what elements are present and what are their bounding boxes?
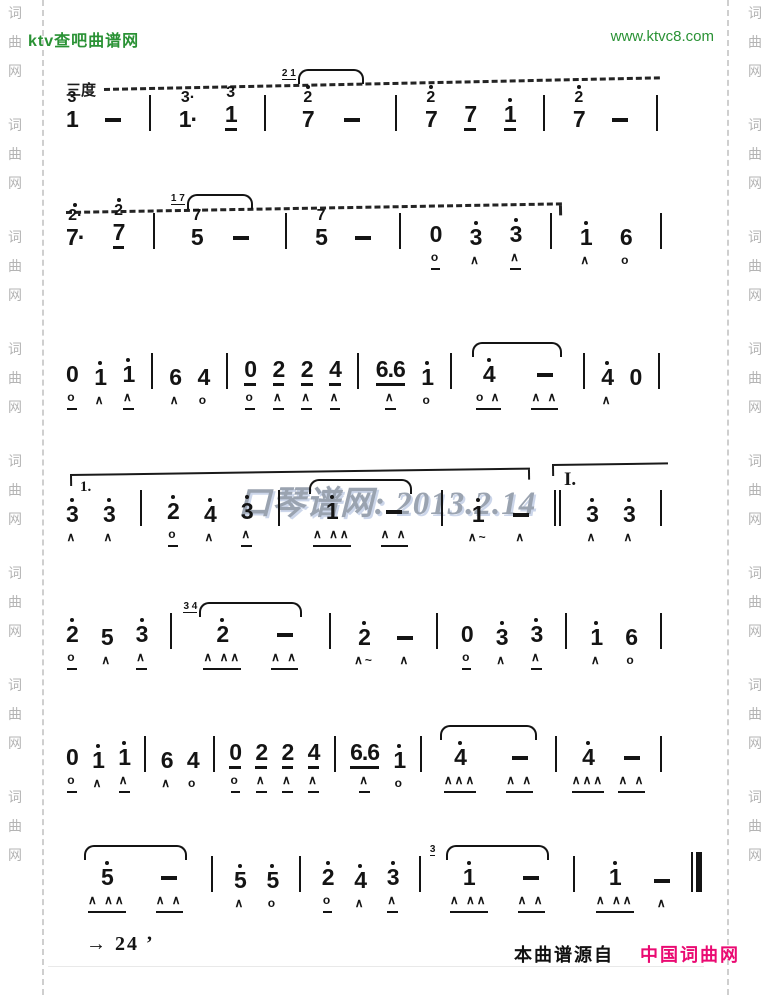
articulation-marks: ∧∧∧ [444,774,476,793]
note-number: 4 [354,869,366,892]
note-number: 2 [358,626,370,649]
barline [395,95,397,131]
articulation-marks: ∧ ∧ [618,774,645,793]
site-name: ktv查吧曲谱网 [28,27,139,51]
note-number: 0 [66,746,78,769]
chord-top-number: 3 [226,85,235,101]
note-token: 3∧ [510,216,522,270]
articulation-marks: ∧ ∧ [381,528,408,547]
barline [285,213,287,249]
dash [523,876,539,880]
articulation-marks: ∧ [301,391,312,410]
page-number: → 24 ʼ [86,933,155,956]
articulation-marks: ∧ [103,531,114,547]
articulation-marks [618,136,623,152]
note-number: 1 [92,749,104,772]
margin-watermark-group: 词曲网 [748,790,762,862]
barline [140,490,142,526]
note-token: 3·1· [179,90,197,152]
margin-watermark-char: 网 [748,512,762,526]
note-token: 1 [504,96,516,152]
dash [654,879,670,883]
margin-watermark-char: 词 [748,678,762,692]
source-site-name: 中国词曲网 [640,941,740,967]
articulation-marks: ∧ [602,394,613,410]
articulation-marks: ∧ [282,774,293,793]
margin-watermark-char: 网 [748,736,762,750]
margin-watermark-char: 网 [8,512,22,526]
margin-watermark-group: 词曲网 [748,566,762,638]
note-number: 2 [66,623,78,646]
margin-watermark-char: 曲 [748,147,762,161]
note-number: 7 [464,103,476,131]
note-number: 1 [123,363,135,386]
barline [420,736,422,772]
articulation-marks: ∧ [308,774,319,793]
articulation-marks: ∧ ∧∧ [88,894,126,913]
articulation-marks [633,394,638,410]
note-number: 2 [301,358,313,386]
note-number: 5 [234,869,246,892]
note-token: 0o [430,223,442,270]
barline [441,490,443,526]
note-number: 1 [504,103,516,131]
margin-watermark-char: 词 [8,342,22,356]
barline [153,213,155,249]
margin-watermark-char: 词 [748,6,762,20]
note-number: 1 [118,746,130,769]
articulation-marks: ∧ [67,531,78,547]
chord-top-number: 3 [67,90,76,106]
note-number: 0 [461,623,473,646]
margin-watermark-char: 词 [748,790,762,804]
right-watermark-column: 词曲网词曲网词曲网词曲网词曲网词曲网词曲网词曲网 [742,0,768,995]
note-number: 2 [216,623,228,646]
left-watermark-column: 词曲网词曲网词曲网词曲网词曲网词曲网词曲网词曲网 [2,0,28,995]
margin-watermark-char: 网 [748,848,762,862]
dash-note: ∧ ∧ [531,373,558,410]
tie-group: 3 42∧ ∧∧∧ ∧ [195,602,306,670]
tie-group: 1∧ ∧∧∧ ∧ [305,479,416,547]
chord-top-number: 3· [181,90,195,106]
articulation-marks: o [268,897,277,913]
note-token: 6o [620,226,632,270]
dash [161,876,177,880]
note-token: 2 127 [302,83,314,152]
articulation-marks [305,136,310,152]
margin-watermark-char: 曲 [8,483,22,497]
note-token: 0o [66,746,78,793]
note-token: 2o [66,616,78,670]
dash-note: ∧ ∧ [506,756,533,793]
articulation-marks: ∧ [399,654,410,670]
articulation-marks [428,136,433,152]
music-system-3: 0o1∧1∧6∧4o0o2∧2∧4∧6.6∧1o4o ∧∧ ∧4∧0 [66,342,660,410]
dash-note: ∧ ∧ [518,876,545,913]
articulation-marks: ∧ [470,254,481,270]
barline [583,353,585,389]
note-number: 3 [136,623,148,646]
barline [357,353,359,389]
margin-watermark-char: 网 [748,624,762,638]
note-number: 1 [94,366,106,389]
note-number: 3 [103,503,115,526]
articulation-marks: o [422,394,431,410]
note-token: 4∧∧∧ [444,739,476,793]
margin-watermark-char: 曲 [748,819,762,833]
note-token: 5∧ [101,626,113,670]
grace-notes: 3 [430,844,436,856]
music-system-6: 0o1∧1∧6∧4o0o2∧2∧4∧6.6∧1o4∧∧∧∧ ∧4∧∧∧∧ ∧ [66,725,662,793]
barline [213,736,215,772]
margin-watermark-char: 网 [8,288,22,302]
articulation-marks: ∧ [624,531,635,547]
tie-group: 4∧∧∧∧ ∧ [436,725,541,793]
note-number: 1 [421,366,433,389]
octave-dot [577,85,581,89]
volta-bracket-first [70,468,530,476]
margin-watermark-char: 词 [8,566,22,580]
note-number: 1· [179,108,197,131]
chord-top-number: 2 [574,90,583,106]
note-number: 1 [393,749,405,772]
articulation-marks: o [621,254,630,270]
barline [565,613,567,649]
articulation-marks: o [67,651,76,670]
dash-note [344,118,360,152]
note-number: 5 [101,626,113,649]
dash-note [233,236,249,270]
margin-watermark-char: 网 [8,624,22,638]
barline [543,95,545,131]
margin-watermark-char: 网 [8,848,22,862]
note-token: 31 [66,90,78,152]
barline [264,95,266,131]
articulation-marks [576,136,581,152]
site-url: www.ktvc8.com [611,28,714,45]
margin-watermark-group: 词曲网 [8,230,22,302]
barline [450,353,452,389]
note-number: 0 [66,363,78,386]
note-number: 2 [255,741,267,769]
articulation-marks: ∧∧∧ [572,774,604,793]
note-token: 27 [113,196,125,270]
dash [105,118,121,122]
chord-top-number: 2· [68,208,82,224]
note-number: 6 [169,366,181,389]
dash [512,756,528,760]
note-token: 1o [421,359,433,410]
note-number: 1 [225,103,237,131]
note-number: 7 [302,108,314,131]
note-token: 4∧ [204,496,216,547]
dash-note: ∧ [654,879,670,913]
note-number: 3 [586,503,598,526]
articulation-marks: ∧ [355,897,366,913]
note-token: 3∧ [623,496,635,547]
music-system-7: 5∧ ∧∧∧ ∧5∧5o2o4∧3∧31∧ ∧∧∧ ∧1∧ ∧∧∧ [80,845,702,913]
margin-watermark-char: 网 [748,176,762,190]
note-token: 7 [464,103,476,152]
note-token: 2·7· [66,201,84,270]
articulation-marks: ∧ [101,654,112,670]
articulation-marks: ∧ ∧ [271,651,298,670]
margin-watermark-char: 网 [748,288,762,302]
right-dashed-divider [727,0,729,995]
margin-watermark-char: 词 [8,790,22,804]
music-system-2: 2·7· 27 1 775 75 0o3∧3∧1∧6o [66,194,662,270]
margin-watermark-group: 词曲网 [748,342,762,414]
note-number: 2 [282,741,294,769]
articulation-marks [468,136,473,152]
note-token: 0o [461,623,473,670]
articulation-marks: ∧ ∧∧ [596,894,634,913]
note-token: 4∧ [329,358,341,410]
grace-notes: 1 7 [171,193,185,205]
articulation-marks: ∧ [580,254,591,270]
music-system-5: 2o5∧3∧3 42∧ ∧∧∧ ∧2∧~∧0o3∧3∧1∧6o [66,602,662,670]
margin-watermark-group: 词曲网 [748,454,762,526]
margin-watermark-char: 曲 [8,259,22,273]
barline [658,353,660,389]
margin-watermark-char: 网 [8,176,22,190]
note-number: 5 [267,869,279,892]
margin-watermark-char: 词 [748,230,762,244]
margin-watermark-char: 词 [748,118,762,132]
note-number: 4 [187,749,199,772]
note-token: 5∧ [234,862,246,913]
articulation-marks [111,136,116,152]
note-token: 6.6∧ [350,741,379,793]
articulation-marks: ∧ [95,394,106,410]
note-token: 2∧~ [354,619,374,670]
margin-watermark-group: 词曲网 [8,566,22,638]
note-token: 1∧ ∧∧ [596,859,634,913]
note-token: 0o [229,741,241,793]
margin-watermark-char: 词 [8,454,22,468]
barline [278,490,280,526]
note-token: 3∧ [103,496,115,547]
note-token: 5o [267,862,279,913]
note-number: 3 [496,626,508,649]
articulation-marks [194,254,199,270]
articulation-marks: o [67,774,76,793]
tie-group: 5∧ ∧∧∧ ∧ [80,845,191,913]
dash [344,118,360,122]
barline [573,856,575,892]
note-token: 4∧ [308,741,320,793]
note-number: 3 [531,623,543,646]
dash-note [612,118,628,152]
dash [624,756,640,760]
music-system-1: 31 3·1· 31 2 127 27 7 1 27 [66,69,658,152]
margin-watermark-group: 词曲网 [8,454,22,526]
articulation-marks: ∧ [273,391,284,410]
note-token: 0o [244,358,256,410]
margin-watermark-char: 词 [8,118,22,132]
note-number: 4 [601,366,613,389]
note-number: 4 [582,746,594,769]
note-number: 3 [387,866,399,889]
articulation-marks: ∧ [385,391,396,410]
final-barline [691,852,702,892]
source-prefix: 本曲谱源自 [514,941,614,967]
margin-watermark-group: 词曲网 [8,790,22,862]
note-number: 7 [425,108,437,131]
note-token: 5∧ ∧∧ [88,859,126,913]
articulation-marks [116,254,121,270]
articulation-marks: ∧ [515,531,526,547]
chord-top-number: 2 [303,90,312,106]
margin-watermark-char: 曲 [748,371,762,385]
bar [691,852,693,892]
articulation-marks: ∧ ∧ [531,391,558,410]
note-token: 4o [187,749,199,793]
articulation-marks: ∧~ [468,531,488,547]
barline [660,736,662,772]
articulation-marks: o [231,774,240,793]
barline [660,613,662,649]
articulation-marks: ∧ ∧ [506,774,533,793]
articulation-marks: o [462,651,471,670]
note-number: 1 [590,626,602,649]
note-token: 2∧ [301,358,313,410]
note-number: 1 [66,108,78,131]
note-token: 3∧ [586,496,598,547]
margin-watermark-char: 词 [748,342,762,356]
articulation-marks [238,254,243,270]
note-number: 4 [204,503,216,526]
articulation-marks [360,254,365,270]
note-token: 1∧ [94,359,106,410]
articulation-marks: ∧ [256,774,267,793]
barline [211,856,213,892]
note-number: 7 [573,108,585,131]
note-number: 6.6 [350,741,379,769]
note-token: 4o ∧ [476,356,501,410]
articulation-marks: ∧ [359,774,370,793]
note-token: 3∧ [241,493,253,547]
barline [660,490,662,526]
barline [299,856,301,892]
articulation-marks: ∧ ∧ [518,894,545,913]
articulation-marks [69,136,74,152]
note-number: 0 [244,358,256,386]
note-token: 31∧ ∧∧ [450,859,488,913]
margin-watermark-char: 网 [748,400,762,414]
source-credit: 本曲谱源自 中国词曲网 [514,941,740,967]
left-dashed-divider [42,0,44,995]
articulation-marks: ∧ [591,654,602,670]
note-token: 0o [66,363,78,410]
dash-note: ∧ ∧ [271,633,298,670]
articulation-marks: o ∧ [476,391,501,410]
note-number: 3 [470,226,482,249]
note-number: 6 [161,749,173,772]
dash-note [105,118,121,152]
note-token: 2∧ [282,741,294,793]
note-number: 0 [630,366,642,389]
dash [355,236,371,240]
dash [277,633,293,637]
articulation-marks: o [245,391,254,410]
grace-notes: 3 4 [183,601,197,613]
note-number: 1 [326,500,338,523]
articulation-marks: ∧ [531,651,542,670]
margin-watermark-char: 网 [8,400,22,414]
note-number: 5 [315,226,327,249]
note-number: 4 [483,363,495,386]
note-token: 1∧~ [468,496,488,547]
margin-watermark-char: 曲 [8,819,22,833]
margin-watermark-char: 网 [8,736,22,750]
margin-watermark-char: 曲 [8,371,22,385]
articulation-marks: o [168,528,177,547]
articulation-marks: ∧ [235,897,246,913]
note-token: 6∧ [169,366,181,410]
articulation-marks: ∧ [587,531,598,547]
margin-watermark-char: 曲 [8,707,22,721]
note-number: 5 [101,866,113,889]
music-system-4: 3∧3∧2o4∧3∧1∧ ∧∧∧ ∧1∧~∧3∧3∧ [66,479,662,547]
note-token: 1∧ [580,219,592,270]
barline [144,736,146,772]
note-token: 6.6∧ [376,358,405,410]
dash [397,636,413,640]
note-token: 3∧ [66,496,78,547]
barline [170,613,172,649]
barline [656,95,658,131]
margin-watermark-char: 曲 [748,259,762,273]
note-token: 1∧ ∧∧ [313,493,351,547]
articulation-marks: ∧ [241,528,252,547]
margin-watermark-char: 词 [748,454,762,468]
articulation-marks: o [199,394,208,410]
note-token: 3∧ [387,859,399,913]
margin-watermark-group: 词曲网 [748,678,762,750]
margin-watermark-group: 词曲网 [748,6,762,78]
note-number: 1 [609,866,621,889]
margin-watermark-group: 词曲网 [8,6,22,78]
tie-group: 4o ∧∧ ∧ [468,342,566,410]
articulation-marks: ∧ [657,897,668,913]
articulation-marks: ∧ [136,651,147,670]
margin-watermark-char: 曲 [748,707,762,721]
note-number: 4 [454,746,466,769]
articulation-marks: ∧ [123,391,134,410]
margin-watermark-char: 曲 [748,35,762,49]
barline [226,353,228,389]
articulation-marks: ∧ ∧ [156,894,183,913]
dash [386,510,402,514]
tie-group: 1 775 [183,194,257,270]
chord-top-number: 7 [317,208,326,224]
volta-bracket-second [552,462,668,466]
dash-note: ∧ ∧ [381,510,408,547]
note-token: 27 [425,83,437,152]
barline [419,856,421,892]
note-token: 1∧ [118,739,130,793]
articulation-marks: o [395,777,404,793]
articulation-marks: ∧ ∧∧ [313,528,351,547]
note-token: 2∧ [273,358,285,410]
note-token: 1 775 [191,208,203,270]
margin-watermark-char: 曲 [748,483,762,497]
articulation-marks: ∧ [330,391,341,410]
margin-watermark-char: 网 [8,64,22,78]
tie-group: 2 127 [294,69,368,152]
octave-dot [117,198,121,202]
